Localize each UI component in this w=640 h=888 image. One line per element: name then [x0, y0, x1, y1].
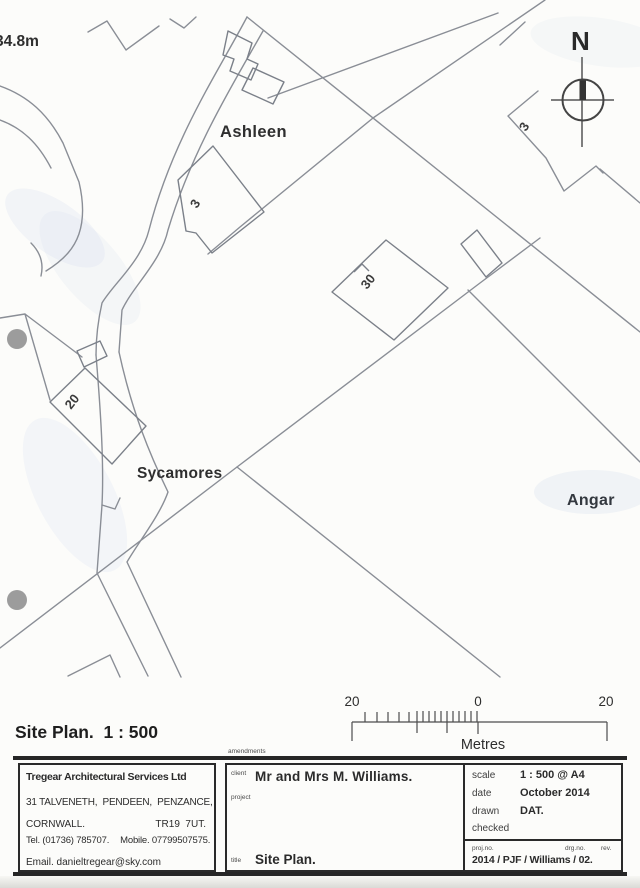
company-postcode: TR19 7UT. [155, 819, 206, 830]
projno-label: proj.no. [472, 845, 494, 852]
street-label-sycamores: Sycamores [137, 465, 222, 482]
building-outline [223, 31, 258, 80]
south-building-corner [68, 655, 120, 677]
scan-wash-patches [0, 8, 640, 587]
scan-bottom-edge [0, 876, 640, 888]
boundary-parallel [468, 290, 640, 462]
compass-needle [580, 81, 587, 101]
drawn-value: DAT. [520, 805, 544, 817]
scalebar-unit-label: Metres [461, 737, 505, 753]
scale-label: scale [472, 770, 495, 781]
company-name: Tregear Architectural Services Ltd [26, 771, 186, 783]
east-plot-outline [508, 91, 640, 203]
titleblock-top-rule [13, 756, 627, 760]
outbuilding-outline [461, 230, 502, 277]
road-edge-right-lower [119, 352, 181, 677]
street-label-ashleen: Ashleen [220, 123, 287, 141]
date-label: date [472, 788, 491, 799]
drawing-number: 2014 / PJF / Williams / 02. [472, 854, 593, 866]
garage-outline [77, 341, 107, 367]
plot-number-20: 20 [62, 391, 83, 412]
boundary-zigzag [170, 17, 196, 28]
site-plan-sheet: 34.8m Ashleen Sycamores Angar 3 30 20 3 … [0, 0, 640, 888]
project-label: project [231, 794, 251, 801]
building-outline [242, 68, 284, 104]
site-plan-map: 34.8m Ashleen Sycamores Angar 3 30 20 3 … [0, 0, 640, 758]
plot-number-30: 30 [358, 271, 379, 292]
titleblock-project-cell: client Mr and Mrs M. Williams. project t… [225, 763, 463, 872]
plot-number-3: 3 [187, 197, 204, 211]
punch-hole [7, 329, 27, 349]
amendments-label: amendments [228, 748, 266, 755]
plot-number-3-partial: 3 [516, 120, 533, 134]
company-address-line1: 31 TALVENETH, PENDEEN, PENZANCE, [26, 797, 213, 808]
scale-value: 1 : 500 @ A4 [520, 769, 585, 781]
scalebar-label-right: 20 [598, 694, 613, 709]
boundary-zigzag [88, 21, 159, 50]
road-edge-right [119, 31, 263, 352]
info-cell-divider [465, 839, 621, 841]
scalebar-minor-ticks [365, 711, 477, 722]
street-label-angar: Angar [567, 492, 615, 509]
scan-wash [2, 402, 149, 588]
company-email: Email. danieltregear@sky.com [26, 857, 161, 868]
company-county: CORNWALL. [26, 819, 85, 830]
boundary-notch [500, 22, 525, 45]
company-mobile: Mobile. 07799507575. [120, 835, 210, 846]
boundary-to-southeast [237, 467, 500, 677]
scalebar-label-zero: 0 [474, 694, 482, 709]
checked-label: checked [472, 823, 509, 834]
client-label: client [231, 770, 246, 777]
titleblock-company-cell: Tregear Architectural Services Ltd 31 TA… [18, 763, 216, 872]
punch-hole [7, 590, 27, 610]
north-label: N [571, 26, 590, 56]
road-curve-west-inner [0, 120, 51, 168]
drgno-label: drg.no. [565, 845, 585, 852]
scalebar-label-left: 20 [344, 694, 359, 709]
buildings [50, 31, 502, 464]
driveway-line [0, 314, 82, 400]
title-value: Site Plan. [255, 852, 316, 867]
company-address-line2: CORNWALL. TR19 7UT. [26, 819, 206, 830]
company-phone-line: Tel. (01736) 785707. Mobile. 07799507575… [26, 835, 210, 846]
map-linework [0, 0, 640, 677]
building-30-outline [332, 240, 448, 340]
client-value: Mr and Mrs M. Williams. [255, 769, 413, 784]
title-label: title [231, 857, 241, 864]
spot-height-label: 34.8m [0, 33, 39, 50]
drawn-label: drawn [472, 806, 499, 817]
company-tel: Tel. (01736) 785707. [26, 835, 109, 846]
plan-title: Site Plan. 1 : 500 [15, 722, 158, 742]
rev-label: rev. [601, 845, 611, 852]
titleblock-info-cell: scale 1 : 500 @ A4 date October 2014 dra… [463, 763, 623, 872]
date-value: October 2014 [520, 787, 590, 799]
